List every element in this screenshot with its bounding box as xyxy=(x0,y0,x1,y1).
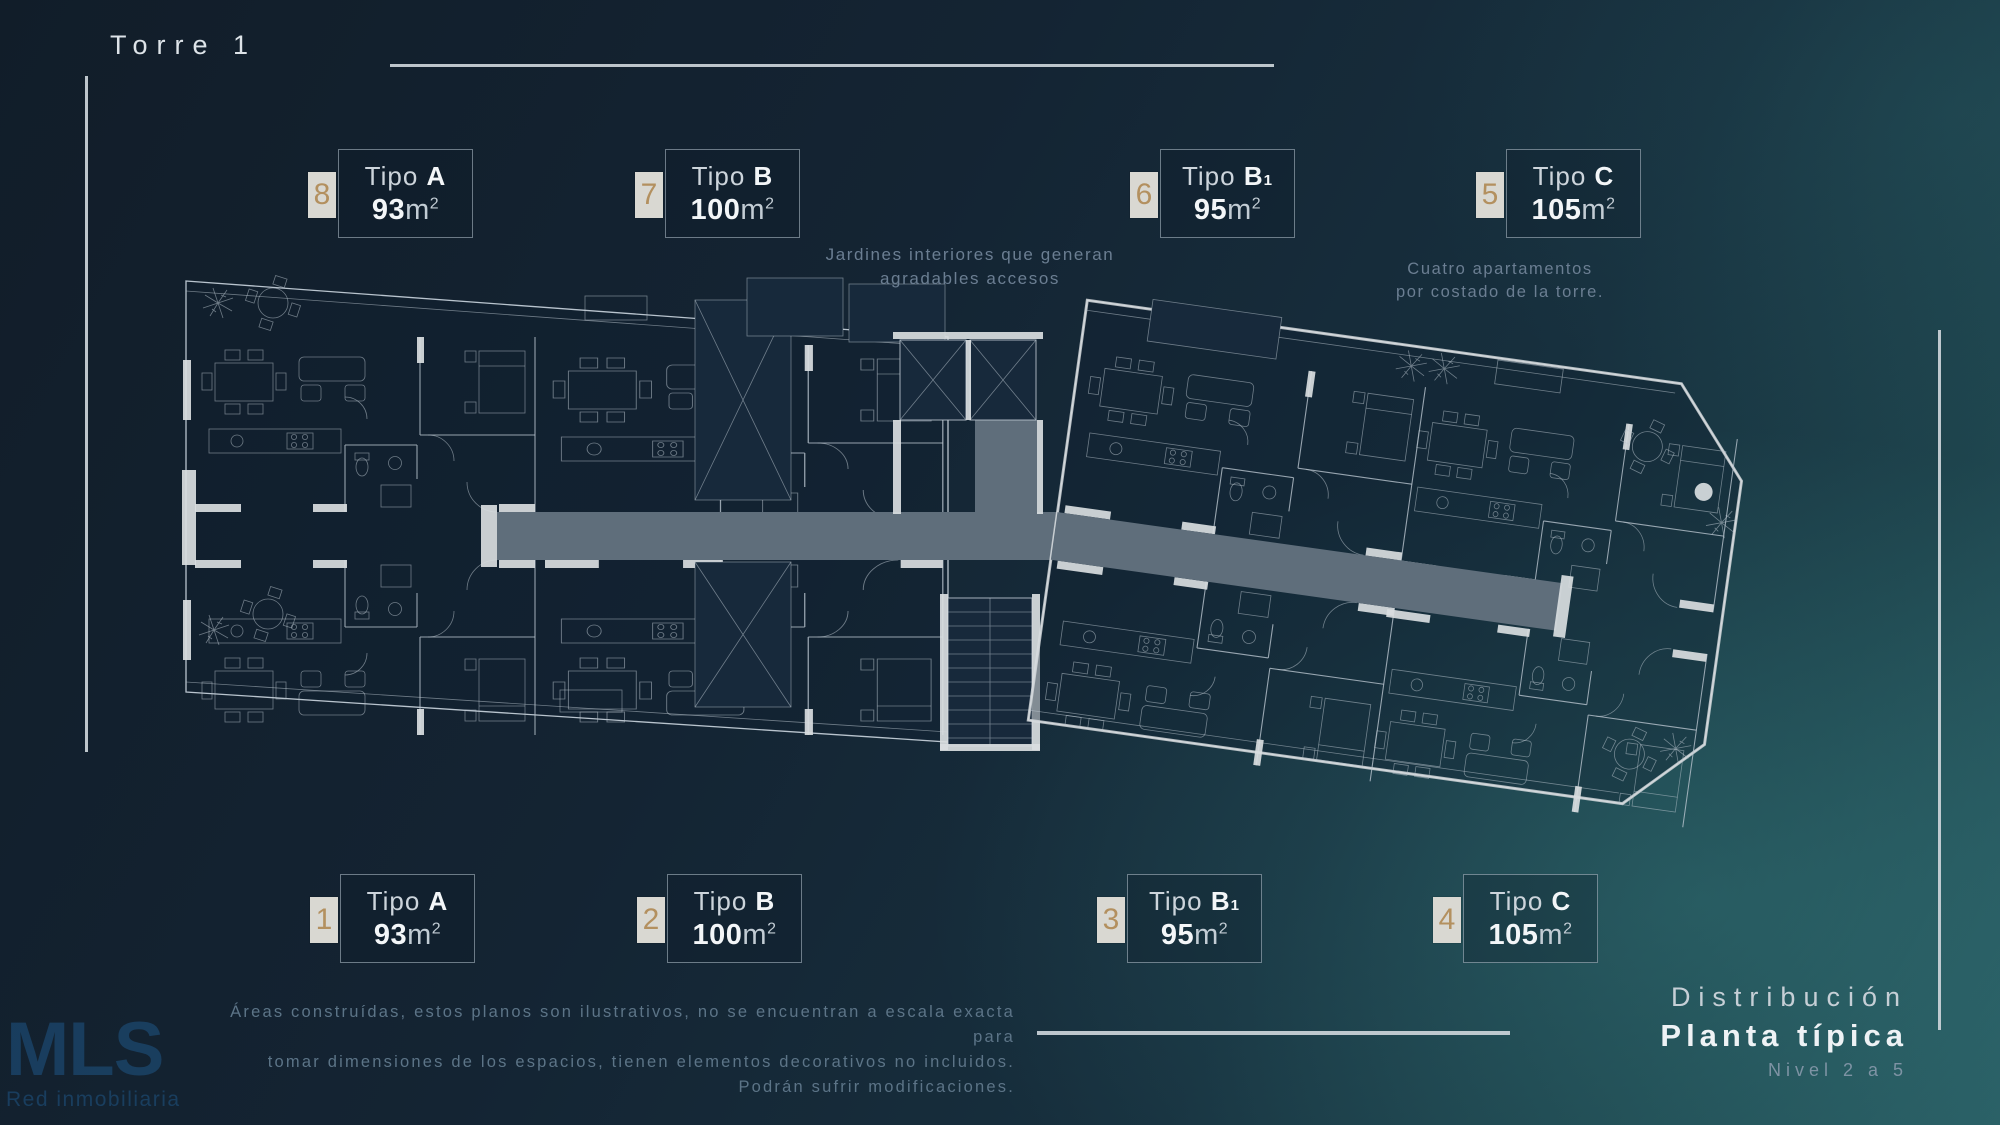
left-wing xyxy=(182,269,948,742)
unit-number-badge: 4 xyxy=(1433,897,1461,943)
floor-plan-drawing xyxy=(0,0,2000,1125)
unit-type-box: Tipo B1 95m2 xyxy=(1160,149,1295,238)
unit-type-box: Tipo C 105m2 xyxy=(1463,874,1598,963)
four-per-side-annotation: Cuatro apartamentos por costado de la to… xyxy=(1360,258,1640,304)
plan-footer: Distribución Planta típica Nivel 2 a 5 xyxy=(1660,982,1908,1081)
unit-number-badge: 3 xyxy=(1097,897,1125,943)
unit-type-box: Tipo C 105m2 xyxy=(1506,149,1641,238)
mls-logo: MLS xyxy=(6,1014,181,1086)
unit-type-box: Tipo A 93m2 xyxy=(338,149,473,238)
bottom-horizontal-rule xyxy=(1037,1031,1510,1035)
unit-label-4: 4 Tipo C 105m2 xyxy=(1433,874,1603,994)
mls-watermark: MLS Red inmobiliaria xyxy=(6,1014,181,1112)
gardens-annotation: Jardines interiores que generan agradabl… xyxy=(770,243,1170,291)
unit-number-badge: 6 xyxy=(1130,172,1158,218)
unit-number-badge: 2 xyxy=(637,897,665,943)
page-title: Torre 1 xyxy=(110,30,257,61)
unit-number-badge: 7 xyxy=(635,172,663,218)
unit-type-box: Tipo B 100m2 xyxy=(667,874,802,963)
unit-number-badge: 5 xyxy=(1476,172,1504,218)
unit-type-box: Tipo A 93m2 xyxy=(340,874,475,963)
unit-label-2: 2 Tipo B 100m2 xyxy=(637,874,807,994)
unit-type-box: Tipo B 100m2 xyxy=(665,149,800,238)
unit-label-8: 8 Tipo A 93m2 xyxy=(308,149,478,269)
distribution-label: Distribución xyxy=(1660,982,1908,1013)
unit-number-badge: 1 xyxy=(310,897,338,943)
left-vertical-rule xyxy=(85,76,88,752)
unit-type-box: Tipo B1 95m2 xyxy=(1127,874,1262,963)
disclaimer-text: Áreas construídas, estos planos son ilus… xyxy=(200,1000,1015,1100)
unit-label-1: 1 Tipo A 93m2 xyxy=(310,874,480,994)
level-label: Nivel 2 a 5 xyxy=(1660,1060,1908,1081)
mls-tagline: Red inmobiliaria xyxy=(6,1088,181,1112)
right-wing xyxy=(1026,290,1756,828)
unit-label-3: 3 Tipo B1 95m2 xyxy=(1097,874,1267,994)
unit-label-5: 5 Tipo C 105m2 xyxy=(1476,149,1646,269)
plan-type-label: Planta típica xyxy=(1660,1018,1908,1054)
right-vertical-rule xyxy=(1938,330,1941,1030)
unit-number-badge: 8 xyxy=(308,172,336,218)
top-horizontal-rule xyxy=(390,64,1274,67)
